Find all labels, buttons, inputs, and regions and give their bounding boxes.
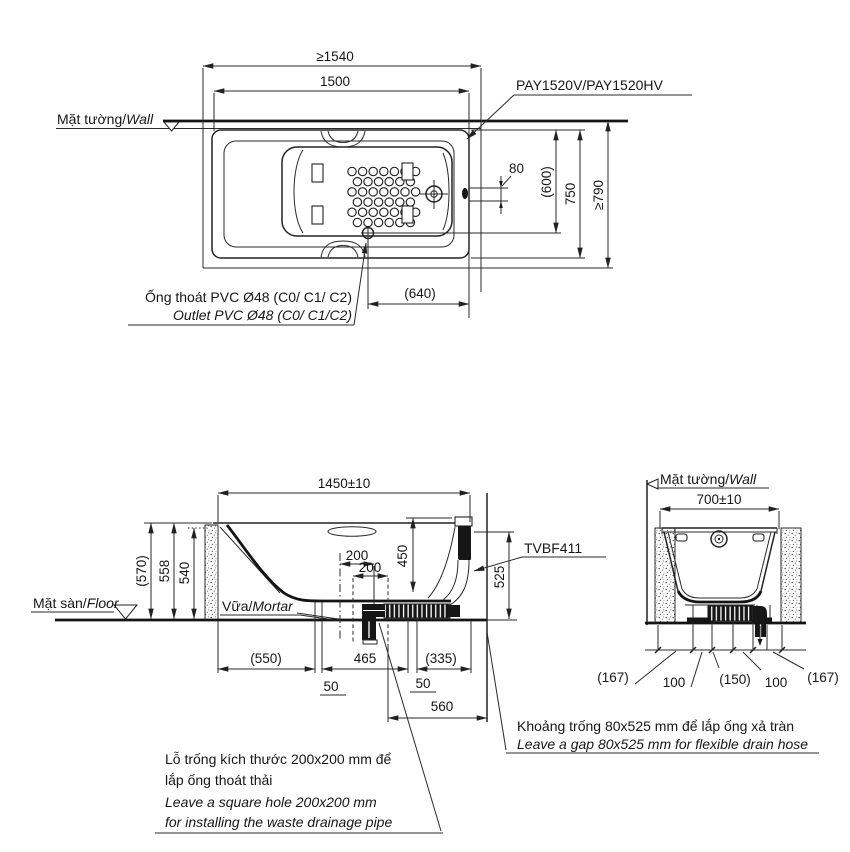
dim-s3: (150) [719,672,751,687]
jet-slot-right-top [402,163,413,180]
jet-slot-left-bottom [312,206,323,224]
overflow-body-side [458,526,471,560]
mortar-column-side [205,525,218,620]
gap-note-en: Leave a gap 80x525 mm for flexible drain… [517,736,808,752]
mortar-column-left [655,528,675,623]
rim-clip-right [753,534,764,541]
dim-outlet-to-end: (640) [404,286,436,301]
hole-note-vi1: Lỗ trống kích thước 200x200 mm để [165,751,392,767]
dim-overflow-offset: 80 [509,161,524,176]
tvbf-label: TVBF411 [524,540,582,556]
overflow-cap-side [455,517,472,526]
dim-overflow-gap-height: 525 [492,566,507,589]
drain-trap-side [384,604,450,618]
dim-hole-size: 200 [359,560,382,575]
rim-clip-left [676,534,687,541]
floor-label: Mặt sàn/Floor [33,595,120,611]
dim-gap-b: 50 [415,676,430,691]
model-label: PAY1520V/PAY1520HV [516,77,663,93]
dim-width-end: 700±10 [697,492,742,507]
hole-note-en2: for installing the waste drainage pipe [165,814,392,830]
dim-height-overall: (570) [134,555,149,587]
dim-s4: 100 [765,675,788,690]
jet-slot-right-bottom [402,206,413,223]
dim-drain-to-wall: (600) [539,166,554,198]
jet-slot-left-top [312,164,323,182]
dim-niche-length: ≥1540 [316,49,353,64]
wall-label-top: Mặt tường/Wall [57,111,154,127]
outlet-label-en: Outlet PVC Ø48 (C0/ C1/C2) [173,307,352,323]
dim-trap-span: 465 [354,651,377,666]
dim-s2: 100 [663,675,686,690]
hole-note-vi2: lắp ống thoát thải [165,772,272,788]
dim-tub-length: 1500 [320,74,350,89]
wall-label-end: Mặt tường/Wall [660,471,757,487]
technical-drawing-canvas: Mặt tường/Wall [0,0,850,852]
dim-tub-width: 750 [563,183,578,206]
dim-s1: (167) [597,670,629,685]
trap-fitting [448,605,460,617]
dim-gap-a: 50 [323,679,338,694]
dim-niche-width: ≥790 [591,180,606,210]
dim-hose-clearance: 560 [431,699,454,714]
dim-s5: (167) [807,670,839,685]
overflow-plan-icon [462,188,468,199]
drain-trap-end [708,606,753,621]
dim-back-clearance: (550) [250,651,282,666]
mortar-label: Vữa/Mortar [222,598,294,614]
dim-height-rim: 558 [157,560,172,583]
hole-note-en1: Leave a square hole 200x200 mm [165,794,377,810]
dim-length-side: 1450±10 [318,476,370,491]
dim-height-inner: 540 [177,562,192,585]
dim-depth: 450 [395,545,410,568]
gap-note-vi: Khoảng trống 80x525 mm để lắp ống xả trà… [517,718,794,734]
bathtub-installation-drawing: Mặt tường/Wall [0,0,850,852]
drain-elbow-end [753,606,767,622]
mortar-column-right [781,528,801,623]
dim-front-clearance: (335) [425,651,457,666]
outlet-label-vi: Ống thoát PVC Ø48 (C0/ C1/ C2) [145,288,352,305]
